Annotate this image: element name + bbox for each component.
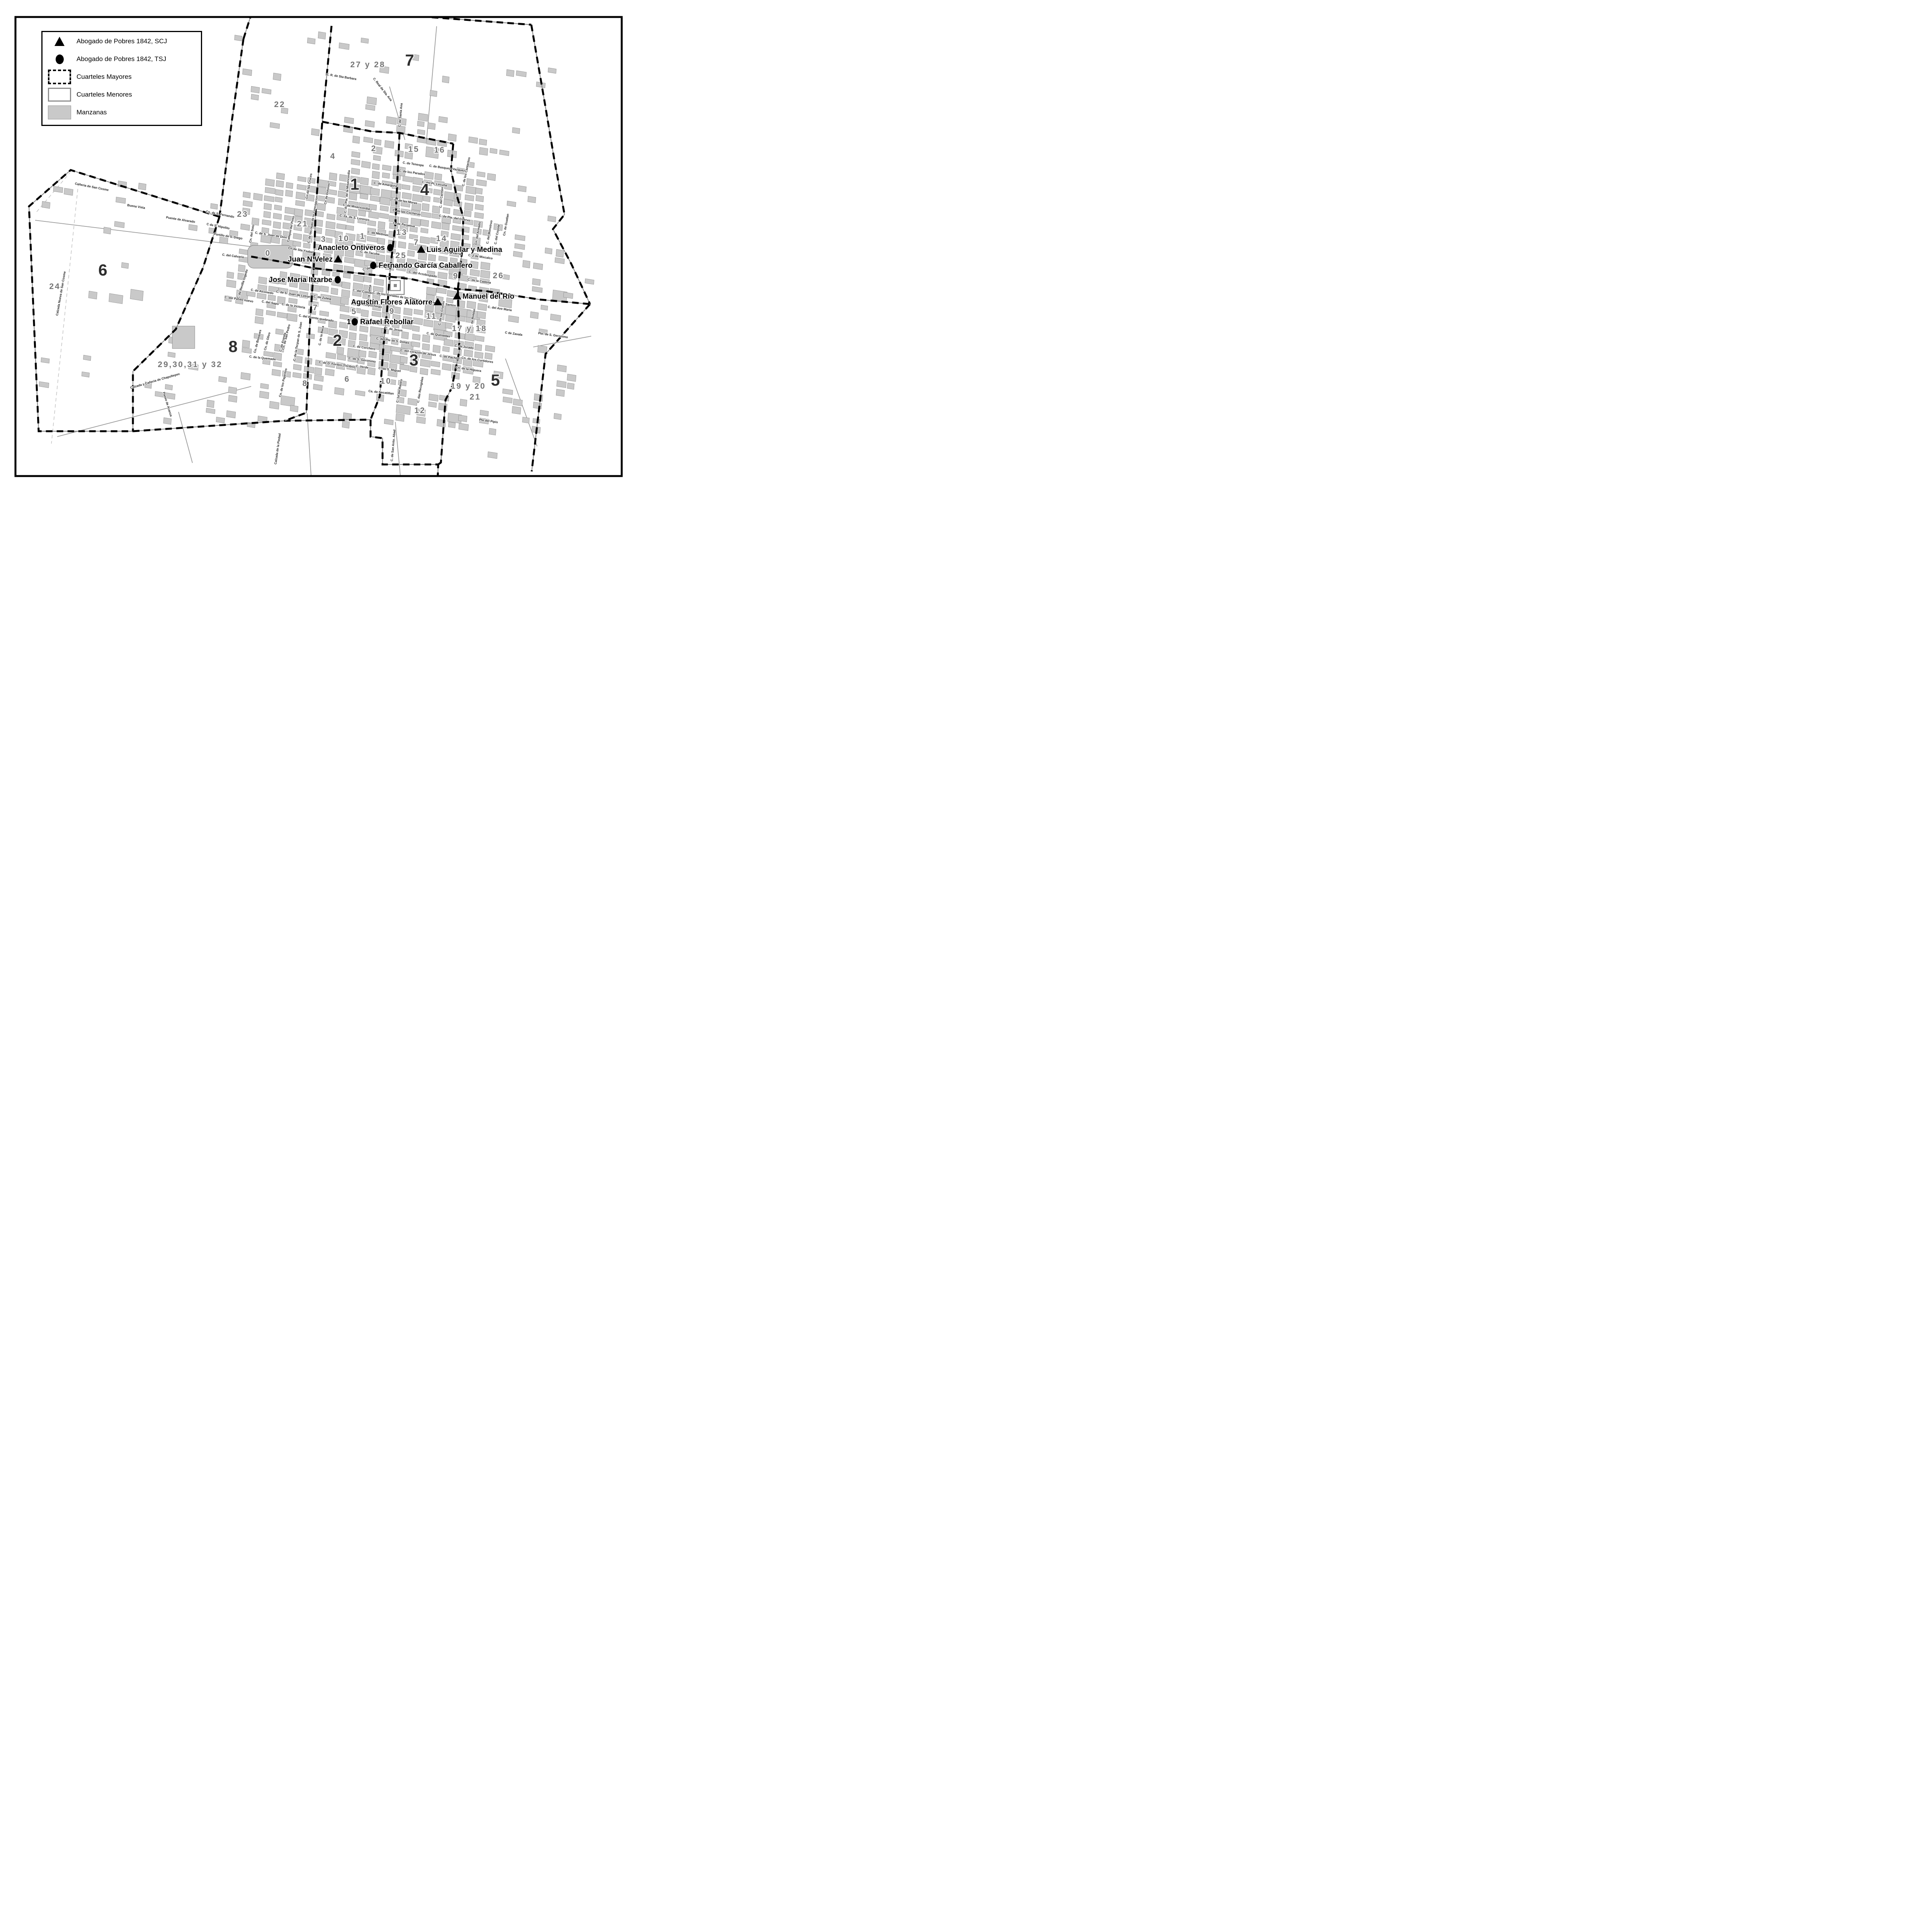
manzana-block (226, 411, 236, 418)
manzana-block (257, 293, 266, 299)
manzana-block (138, 183, 146, 190)
manzana-block (361, 38, 369, 43)
manzana-block (251, 94, 259, 100)
manzana-block (533, 402, 542, 409)
manzana-block (318, 32, 326, 39)
manzana-block (251, 86, 260, 93)
manzana-block (585, 279, 594, 284)
manzana-block (273, 73, 281, 81)
manzana-block (556, 249, 564, 257)
manzana-block (403, 308, 412, 316)
abogado-name-label: Rafael Rebollar (360, 318, 414, 326)
manzana-block (528, 196, 536, 203)
manzana-block (322, 270, 330, 276)
manzana-block (464, 350, 473, 357)
cuartel-menor-number: 9 (389, 307, 395, 316)
manzana-block (367, 236, 378, 242)
manzana-block (252, 218, 259, 226)
manzana-block (379, 344, 393, 354)
manzana-block (475, 204, 484, 210)
street-label: Cn. de Guatlan (502, 213, 510, 236)
manzana-block (545, 248, 552, 254)
manzana-block (442, 346, 449, 352)
manzana-block (421, 212, 431, 218)
manzana-block (219, 376, 227, 383)
cuartel-menor-number: 21 (297, 219, 308, 228)
manzana-block (364, 137, 373, 143)
manzana-block (264, 196, 274, 202)
manzana-block (274, 205, 282, 211)
manzana-block (259, 391, 269, 399)
manzana-block (487, 173, 496, 180)
manzana-block (264, 351, 273, 357)
manzana-block (512, 128, 520, 134)
manzana-block (400, 356, 408, 364)
manzana-block (442, 363, 451, 371)
manzana-block (349, 192, 357, 200)
manzana-block (304, 366, 314, 373)
manzana-block (293, 233, 302, 240)
manzana-block (340, 297, 349, 305)
manzana-block (351, 159, 360, 165)
manzana-block (475, 188, 482, 194)
manzana-block (235, 35, 242, 41)
manzana-block (369, 211, 379, 219)
manzana-block (379, 353, 389, 361)
manzana-block (417, 129, 425, 135)
manzana-block (243, 69, 252, 76)
manzana-block (469, 137, 478, 144)
cuartel-menor-number: 24 (49, 282, 60, 291)
manzana-block (420, 219, 429, 227)
street-label: Buena Vista (127, 203, 146, 209)
manzana-block (555, 257, 565, 264)
road-line (179, 412, 192, 463)
manzanas-swatch (48, 105, 71, 119)
manzana-block (260, 383, 269, 389)
street-label: C. de la Cadena (468, 278, 492, 284)
manzana-block (465, 195, 474, 201)
manzana-block (367, 97, 377, 105)
manzana-block (479, 147, 488, 155)
manzana-block (359, 334, 367, 341)
manzana-block (262, 219, 271, 226)
street-label: Calzada Nueva de San Cosme (55, 271, 66, 316)
manzana-block (238, 265, 245, 272)
manzana-block (241, 372, 250, 380)
manzana-block (567, 374, 576, 381)
manzana-block (537, 345, 547, 354)
manzana-block (479, 139, 487, 145)
abogado-tsj-circle-icon (370, 262, 376, 269)
cuartel-mayor-boundary-line (133, 217, 219, 431)
cuartel-menor-number: 23 (237, 210, 248, 219)
manzana-block (365, 121, 375, 128)
manzana-block (273, 221, 281, 229)
manzana-block (275, 197, 282, 202)
manzana-block (351, 168, 360, 175)
manzana-block (325, 369, 335, 376)
cuartel-menor-number: 3 (321, 235, 327, 244)
manzana-block (189, 224, 197, 231)
manzana-block (358, 210, 366, 216)
manzana-block (344, 257, 354, 264)
road-line (307, 413, 311, 475)
street-label: C. 2 de Mixcalco (468, 253, 493, 260)
manzana-block (380, 206, 389, 211)
cuartel-mayor-number: 7 (405, 51, 415, 69)
cuartel-mayor-number: 2 (333, 331, 342, 349)
cuartel-menor-number: 13 (396, 228, 407, 237)
manzana-block (420, 368, 428, 375)
manzana-block (344, 117, 354, 124)
cuartel-mayor-number: 3 (409, 351, 419, 369)
manzana-block (567, 383, 574, 389)
manzana-block (313, 384, 323, 391)
manzana-block (276, 173, 285, 180)
manzana-block (417, 121, 424, 127)
manzana-block (503, 389, 513, 395)
manzana-block (474, 344, 482, 351)
manzana-block (490, 148, 497, 154)
manzana-block (448, 134, 457, 141)
cuartel-menor-number: 0 (265, 249, 271, 258)
manzana-block (532, 279, 541, 286)
manzana-block (412, 326, 420, 332)
manzana-block (293, 372, 301, 378)
manzana-block (216, 417, 224, 423)
manzana-block (533, 418, 540, 424)
abogado-tsj-circle-icon (335, 276, 341, 284)
manzana-block (327, 214, 335, 220)
manzana-block (211, 203, 218, 209)
manzana-block (384, 419, 393, 425)
manzana-block (478, 303, 487, 311)
manzana-block (513, 399, 522, 406)
manzana-block (401, 332, 409, 339)
abogado-name-label: Jose Maria Itzarbe (269, 276, 332, 284)
manzana-block (452, 225, 462, 231)
manzana-block (509, 315, 519, 323)
manzana-block (359, 350, 366, 357)
manzana-block (281, 396, 295, 407)
manzana-block (436, 287, 446, 294)
manzana-block (396, 413, 405, 422)
abogado-name-label: Juan N Velez (288, 255, 333, 264)
manzana-block (477, 172, 485, 177)
manzana-block (354, 275, 364, 282)
manzana-block (116, 197, 126, 204)
cuartel-menor-number: 22 (274, 100, 285, 109)
cuartel-menor-number: 11 (426, 312, 437, 321)
manzana-block (550, 314, 561, 321)
manzana-block (253, 193, 263, 201)
manzana-block (262, 88, 271, 94)
manzana-block (219, 237, 228, 244)
manzana-block (296, 200, 305, 206)
street-label: C. del Arzobispado (408, 270, 437, 279)
manzana-block (403, 176, 413, 182)
street-label: C. de San Anto. Abad (390, 429, 396, 461)
manzana-block (518, 185, 526, 192)
manzana-block (431, 221, 441, 229)
street-label: C. R. de Sta Barbara (326, 73, 357, 81)
manzana-block (446, 298, 453, 303)
manzana-block (374, 279, 384, 286)
manzana-block (475, 335, 484, 342)
cuartel-mayor-number: 8 (228, 337, 238, 355)
manzana-block (247, 291, 255, 297)
manzana-block (534, 394, 543, 401)
manzana-block (515, 235, 525, 241)
manzana-block (243, 201, 253, 207)
cuartel-mayor-number: 6 (98, 261, 108, 279)
manzana-block (361, 161, 370, 168)
manzana-block (303, 243, 310, 248)
manzana-block (329, 173, 337, 181)
manzana-block (114, 221, 124, 228)
manzana-block (311, 129, 320, 136)
manzana-block (464, 210, 471, 217)
manzana-block (451, 233, 461, 240)
manzana-block (398, 241, 406, 248)
manzana-block (352, 136, 360, 144)
manzana-block (466, 186, 476, 194)
manzana-block (316, 211, 323, 217)
manzana-block (465, 333, 474, 341)
manzana-block (467, 301, 476, 309)
cuartel-menor-number: 2 (371, 144, 377, 153)
cuartel-mayor-number: 1 (350, 175, 360, 193)
manzana-block (412, 334, 420, 340)
cuartel-menor-number: 17 y 18 (452, 324, 487, 333)
manzana-block (507, 201, 516, 207)
manzana-block (422, 203, 429, 211)
street-label: C de Zavala (505, 331, 523, 337)
manzana-block (297, 184, 306, 190)
manzana-block (515, 243, 525, 250)
manzana-block (241, 224, 250, 230)
legend-label-cuarteles-mayores: Cuarteles Mayores (77, 73, 132, 81)
manzana-block (460, 399, 467, 406)
manzana-block (384, 140, 394, 148)
cuartel-menor-number: 7 (414, 238, 420, 247)
legend-row-scj: Abogado de Pobres 1842, SCJ (43, 33, 201, 50)
manzana-block (109, 293, 123, 304)
legend-label-scj: Abogado de Pobres 1842, SCJ (77, 37, 167, 45)
manzana-block (286, 182, 293, 189)
manzana-block (255, 316, 264, 324)
manzana-block (474, 352, 483, 359)
manzana-block (513, 251, 522, 257)
cuartel-menor-number: 10 (338, 234, 349, 243)
manzana-block (339, 43, 349, 50)
manzana-block (370, 196, 380, 202)
manzana-block (420, 359, 430, 367)
manzana-block (273, 361, 282, 367)
manzana-block (88, 291, 97, 299)
manzana-block (459, 423, 469, 431)
street-label: Cañeria de San Cosme (75, 182, 109, 192)
manzana-block (429, 401, 437, 407)
manzana-block (370, 188, 380, 196)
manzana-block (402, 192, 412, 200)
manzana-block (530, 311, 538, 319)
manzana-block (266, 310, 276, 316)
manzana-block (82, 372, 89, 377)
cuartel-menor-number: 16 (434, 146, 445, 155)
manzana-block (372, 311, 381, 317)
manzana-block (451, 372, 459, 379)
manzana-block (239, 249, 248, 255)
manzana-block (413, 318, 423, 325)
manzana-block (414, 309, 423, 315)
manzana-block (352, 151, 360, 158)
manzana-block (349, 332, 356, 340)
manzana-block (296, 192, 306, 200)
manzana-block (522, 417, 530, 423)
manzana-block (360, 177, 369, 185)
manzana-block (554, 413, 561, 420)
manzana-block (541, 305, 548, 310)
manzana-block (163, 418, 172, 425)
manzana-block (548, 68, 556, 73)
manzana-block (522, 260, 530, 268)
manzana-block (373, 155, 381, 161)
manzana-block (442, 223, 449, 230)
manzana-block (316, 219, 323, 226)
manzana-block (372, 171, 380, 179)
manzana-block (41, 357, 49, 363)
manzana-block (361, 310, 368, 317)
manzana-block (445, 323, 452, 329)
manzana-block (259, 277, 267, 284)
manzana-block (242, 340, 250, 348)
manzana-block (206, 408, 215, 414)
manzana-block (464, 202, 473, 211)
manzana-block (396, 405, 411, 415)
legend-row-tsj: Abogado de Pobres 1842, TSJ (43, 51, 201, 68)
cuartel-menor-number: 10 (380, 377, 391, 386)
manzana-block (39, 381, 49, 388)
manzana-block (418, 252, 427, 260)
manzana-block (439, 116, 447, 123)
manzana-block (426, 287, 436, 296)
manzana-block (355, 390, 365, 396)
manzana-block (317, 187, 326, 194)
manzana-block (382, 165, 391, 171)
manzana-block (438, 272, 447, 279)
manzana-block (506, 70, 514, 77)
manzana-block (431, 361, 440, 367)
manzana-block (407, 250, 415, 257)
manzana-block (290, 405, 298, 412)
manzana-block (408, 398, 417, 405)
manzana-block (207, 400, 214, 408)
abogado-tsj-circle-icon (352, 318, 358, 326)
manzana-block (420, 236, 430, 244)
manzana-block (293, 364, 301, 370)
manzana-block (481, 262, 490, 270)
manzana-block (269, 401, 279, 409)
manzana-block (276, 180, 284, 187)
manzana-block (503, 397, 512, 403)
street-label: Portillo de S. Diego (214, 232, 243, 240)
manzana-block (480, 410, 488, 416)
manzana-block (83, 355, 91, 361)
street-label: C. de la Tecpan de S. Juan (293, 321, 303, 361)
manzana-block (277, 312, 287, 318)
manzana-block (307, 38, 315, 44)
manzana-block (276, 189, 283, 196)
manzana-block (331, 288, 338, 295)
manzana-block (428, 254, 436, 261)
manzana-block (314, 375, 323, 382)
manzana-block (335, 387, 344, 395)
manzana-block (342, 421, 349, 429)
manzana-block (532, 286, 543, 293)
legend-label-cuarteles-menores: Cuarteles Menores (77, 91, 132, 99)
cuartel-menor-number: 19 y 20 (451, 382, 486, 391)
cuartel-menor-number: 4 (330, 152, 336, 161)
legend-label-manzanas: Manzanas (77, 109, 107, 116)
map-page: Cañeria de San CosmeBuena VistaPuente de… (0, 0, 638, 493)
manzana-block (417, 417, 426, 424)
legend-row-manzanas: Manzanas (43, 104, 201, 121)
manzana-block (391, 191, 401, 199)
cuartel-mayor-number: 5 (491, 371, 500, 389)
manzana-block (424, 172, 434, 180)
manzana-block (533, 263, 543, 270)
manzana-block (130, 289, 143, 301)
manzana-block (326, 352, 336, 359)
cuartel-menor-number: 7 (313, 303, 319, 312)
manzana-block (298, 176, 306, 182)
cuartel-menor-number: 26 (493, 271, 504, 280)
cuartel-menor-number: 29,30,31 y 32 (158, 360, 222, 369)
manzana-block (433, 345, 440, 353)
manzana-block (265, 179, 275, 186)
legend-row-cuarteles-mayores: Cuarteles Mayores (43, 68, 201, 85)
manzana-block (422, 344, 430, 350)
manzana-block (557, 381, 566, 388)
manzana-block (343, 413, 352, 420)
manzana-block (228, 395, 237, 403)
cuarteles-mayores-swatch (48, 70, 71, 84)
legend-row-cuarteles-menores: Cuarteles Menores (43, 86, 201, 103)
manzana-block (430, 90, 437, 97)
manzana-block (306, 333, 315, 339)
triangle-scj-icon (54, 37, 65, 46)
cuarteles-menores-swatch (48, 88, 71, 102)
manzana-block (448, 422, 456, 428)
manzana-block (64, 188, 73, 196)
manzana-block (548, 216, 556, 222)
manzana-block (444, 199, 453, 206)
cuartel-menor-number: 5 (352, 307, 357, 316)
manzana-block (337, 354, 346, 361)
manzana-block (264, 203, 272, 210)
manzana-block (480, 270, 490, 279)
manzana-block (227, 272, 234, 278)
manzana-block (341, 289, 350, 298)
manzana-block (476, 179, 487, 186)
street-label: Calzada de la Piedad (274, 433, 281, 464)
cuartel-menor-number: 15 (408, 145, 419, 154)
street-label: C. de Basquez (Vazquez) (429, 164, 466, 172)
manzana-block (369, 204, 377, 210)
street-label: Cn. de Bosques (253, 329, 262, 354)
